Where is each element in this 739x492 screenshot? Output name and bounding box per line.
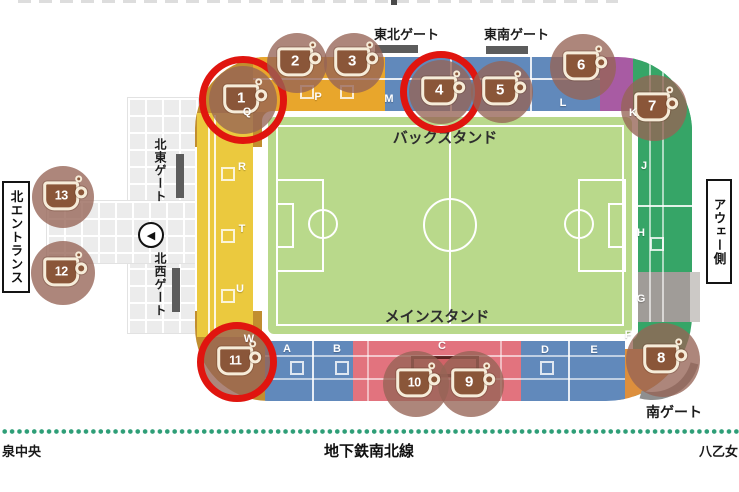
direction-arrow-icon: ◀ bbox=[138, 222, 164, 248]
coffee-cup-icon: 9 bbox=[451, 368, 487, 397]
stand-section-P: P bbox=[314, 91, 321, 103]
coffee-cup-icon: 2 bbox=[277, 47, 313, 76]
stall-number: 8 bbox=[646, 347, 676, 369]
stall-number: 13 bbox=[46, 184, 76, 206]
stand-section-C: C bbox=[438, 340, 446, 352]
stand-section-K: K bbox=[629, 107, 637, 119]
away-side-box: アウェー側 bbox=[706, 179, 732, 284]
stand-section-M: M bbox=[384, 93, 393, 105]
stall-number: 12 bbox=[46, 260, 76, 282]
stall-number: 2 bbox=[280, 50, 310, 72]
stand-section-U: U bbox=[236, 283, 244, 295]
stall-number: 11 bbox=[220, 349, 250, 371]
stand-section-A: A bbox=[283, 343, 291, 355]
coffee-cup-icon: 1 bbox=[223, 84, 259, 113]
stall-number: 3 bbox=[337, 50, 367, 72]
station-right: 八乙女 bbox=[699, 441, 738, 460]
coffee-cup-icon: 3 bbox=[334, 47, 370, 76]
stand-section-W: W bbox=[244, 333, 254, 345]
stand-section-R: R bbox=[238, 161, 246, 173]
stall-number: 10 bbox=[399, 371, 429, 393]
north-entrance-box: 北エントランス bbox=[2, 181, 30, 293]
stall-number: 6 bbox=[566, 54, 596, 76]
stand-section-F: F bbox=[625, 329, 632, 341]
gate-left-northeast-bar bbox=[176, 154, 184, 198]
coffee-cup-icon: 11 bbox=[217, 346, 253, 375]
gate-northeast-label: 東北ゲート bbox=[374, 24, 439, 43]
outer-walkway-strip bbox=[690, 272, 700, 322]
stand-section-B: B bbox=[333, 343, 341, 355]
stall-number: 4 bbox=[424, 79, 454, 101]
top-cutoff-mark bbox=[391, 0, 397, 5]
south-gate-label: 南ゲート bbox=[646, 402, 702, 422]
subway-line-label: 地下鉄南北線 bbox=[324, 440, 414, 461]
stall-number: 7 bbox=[637, 95, 667, 117]
coffee-cup-icon: 8 bbox=[643, 344, 679, 373]
gate-left-northwest-bar bbox=[172, 268, 180, 312]
coffee-cup-icon: 13 bbox=[43, 181, 79, 210]
stand-section-L: L bbox=[560, 97, 567, 109]
stall-number: 9 bbox=[454, 371, 484, 393]
gate-southeast-label: 東南ゲート bbox=[484, 24, 549, 43]
coffee-cup-icon: 7 bbox=[634, 92, 670, 121]
coffee-cup-icon: 5 bbox=[482, 76, 518, 105]
gate-southeast-bar bbox=[486, 46, 528, 54]
subway-dotted-line bbox=[0, 429, 739, 434]
stand-section-H: H bbox=[637, 227, 645, 239]
stand-section-E: E bbox=[590, 344, 597, 356]
gate-left-northeast-label: 北東ゲート bbox=[152, 138, 169, 203]
station-left: 泉中央 bbox=[2, 441, 41, 460]
stand-section-G: G bbox=[637, 293, 646, 305]
stand-section-J: J bbox=[641, 160, 647, 172]
stadium-map: バックスタンド メインスタンド 東北ゲート 東南ゲート 北東ゲート 北西ゲート … bbox=[0, 0, 739, 492]
stand-section-Q: Q bbox=[243, 106, 252, 118]
goal-box-right bbox=[608, 203, 626, 248]
coffee-cup-icon: 4 bbox=[421, 76, 457, 105]
coffee-cup-icon: 6 bbox=[563, 51, 599, 80]
coffee-cup-icon: 12 bbox=[43, 257, 79, 286]
stand-section-T: T bbox=[239, 223, 246, 235]
gate-left-northwest-label: 北西ゲート bbox=[152, 252, 169, 317]
main-stand-label: メインスタンド bbox=[385, 306, 490, 327]
stall-number: 5 bbox=[485, 79, 515, 101]
away-side-label: アウェー側 bbox=[710, 198, 729, 266]
north-entrance-label: 北エントランス bbox=[7, 190, 26, 285]
goal-box-left bbox=[276, 203, 294, 248]
coffee-cup-icon: 10 bbox=[396, 368, 432, 397]
center-circle bbox=[423, 198, 477, 252]
stand-section-D: D bbox=[541, 344, 549, 356]
top-cutoff-remnant bbox=[18, 0, 618, 3]
soccer-pitch bbox=[268, 117, 632, 334]
